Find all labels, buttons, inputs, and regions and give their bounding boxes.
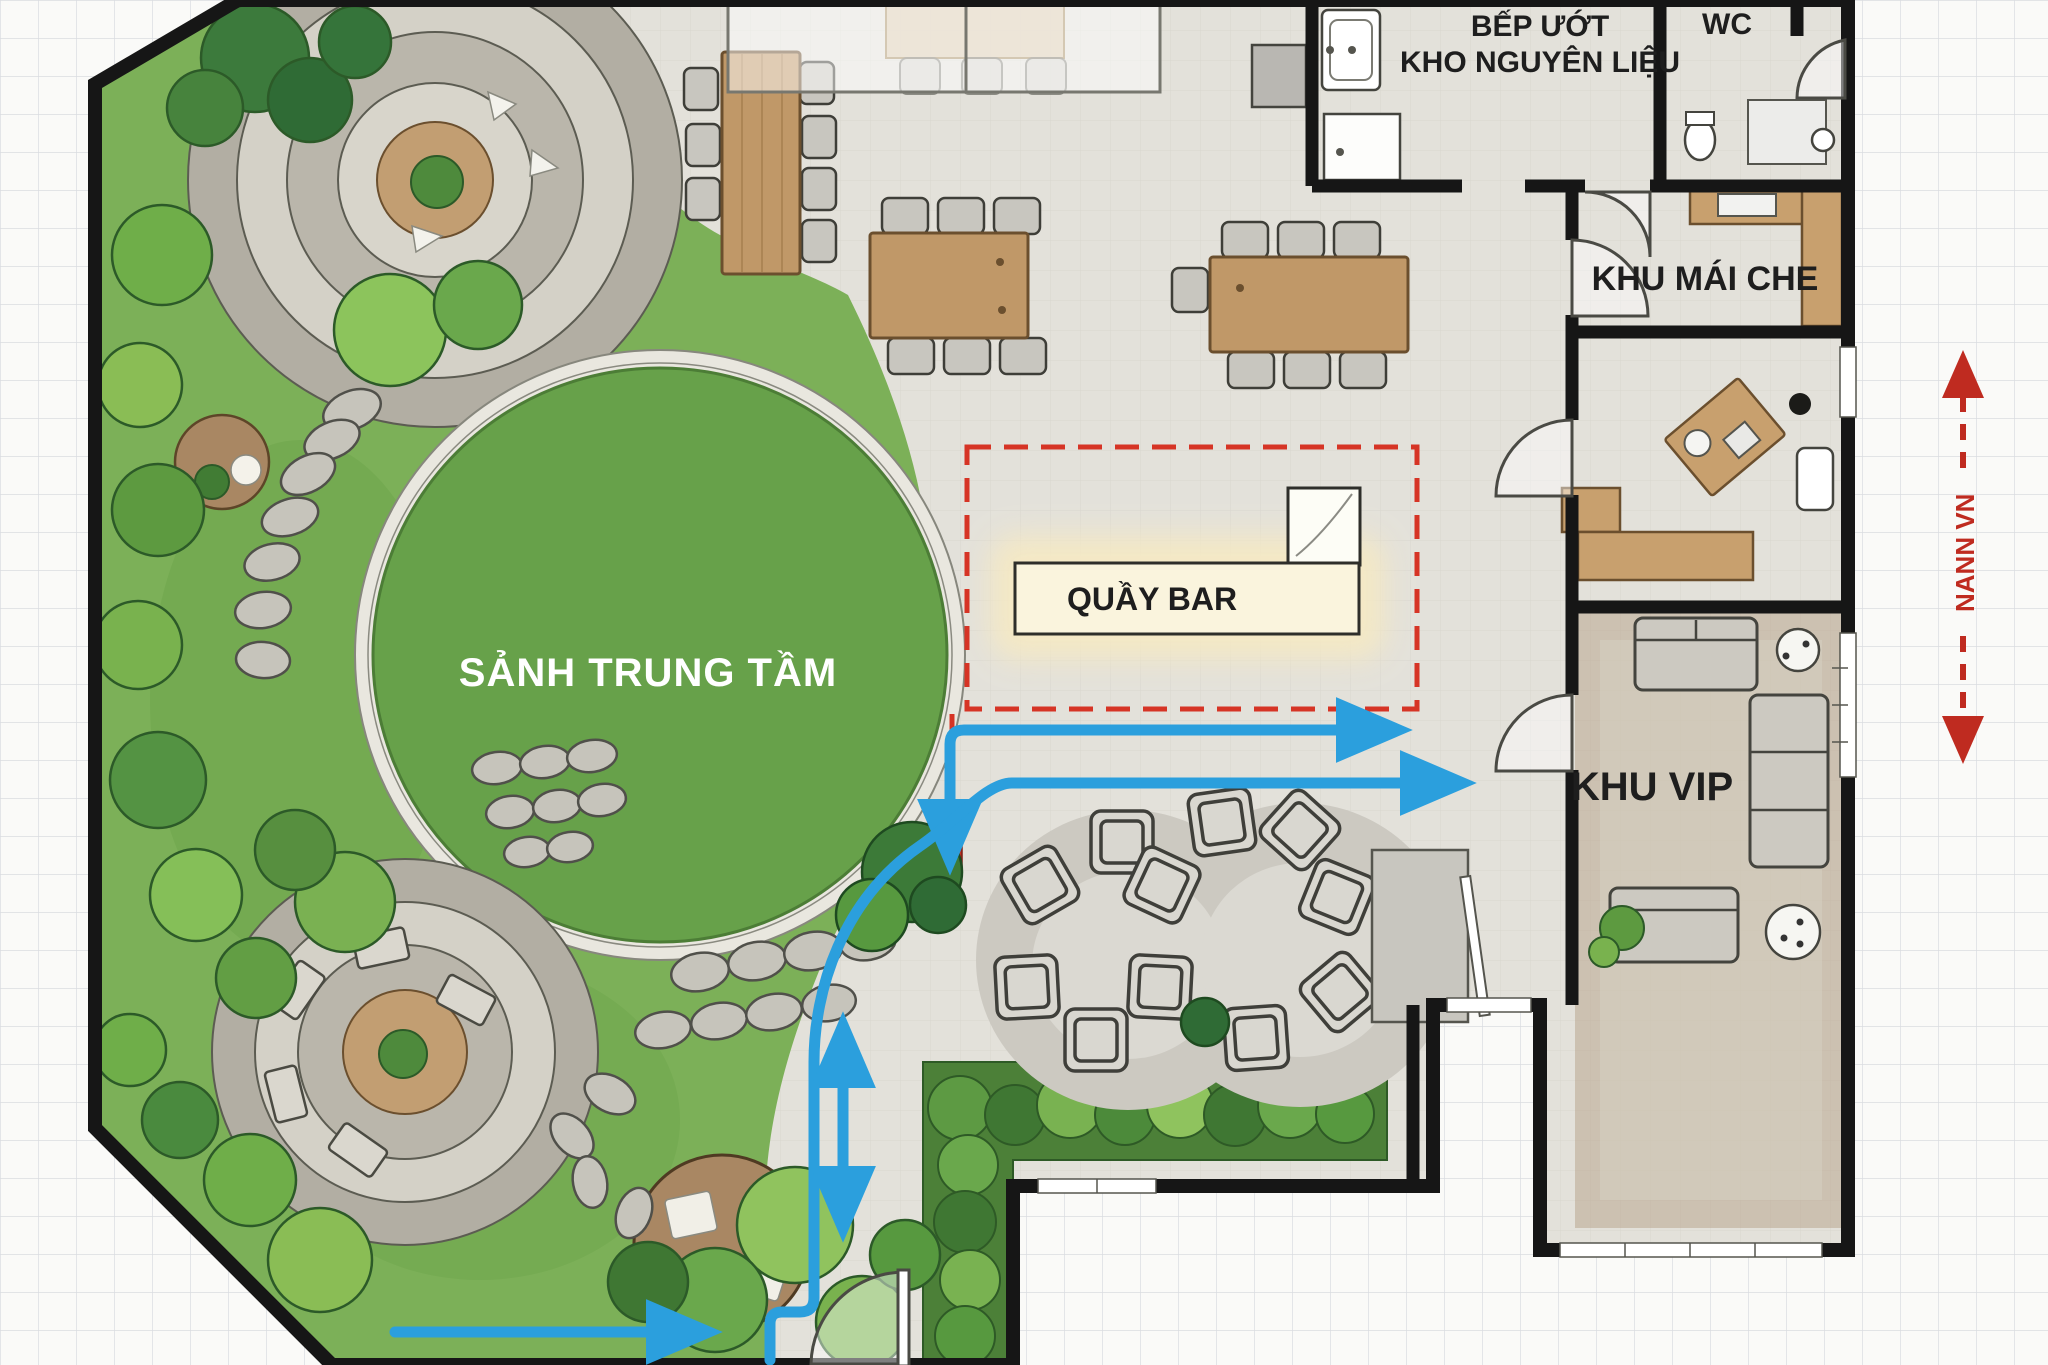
entry-mat [1372, 850, 1468, 1022]
vip-label: KHU VIP [1571, 765, 1733, 809]
vip-side-table-1 [1777, 629, 1819, 671]
kitchen-sink [1322, 10, 1380, 90]
floor-plan-canvas: QUẦY BAR [0, 0, 2048, 1365]
covered-area-label: KHU MÁI CHE [1592, 260, 1819, 298]
vip-room [1575, 612, 1847, 1228]
wc-label: WC [1702, 8, 1752, 41]
table-horizontal-1 [870, 198, 1046, 374]
office-sink [1797, 448, 1833, 510]
kitchen-unit [1324, 114, 1400, 180]
floor-plan-page: QUẦY BAR [0, 0, 2048, 1365]
central-hall-label: SẢNH TRUNG TẦM [459, 649, 837, 695]
wet-kitchen-label-1: BẾP ƯỚT [1471, 9, 1609, 43]
stool [1789, 393, 1811, 415]
bar-label: QUẦY BAR [1067, 581, 1237, 617]
measure-note: NANN VN [1950, 494, 1980, 612]
glass-canopy [728, 0, 1160, 94]
wet-kitchen-label-2: KHO NGUYÊN LIỆU [1400, 45, 1680, 79]
vip-sofa-right [1750, 695, 1828, 867]
lounge-bush [1181, 998, 1229, 1046]
kitchen-cabinet [1252, 45, 1306, 107]
vip-side-table-2 [1766, 905, 1820, 959]
